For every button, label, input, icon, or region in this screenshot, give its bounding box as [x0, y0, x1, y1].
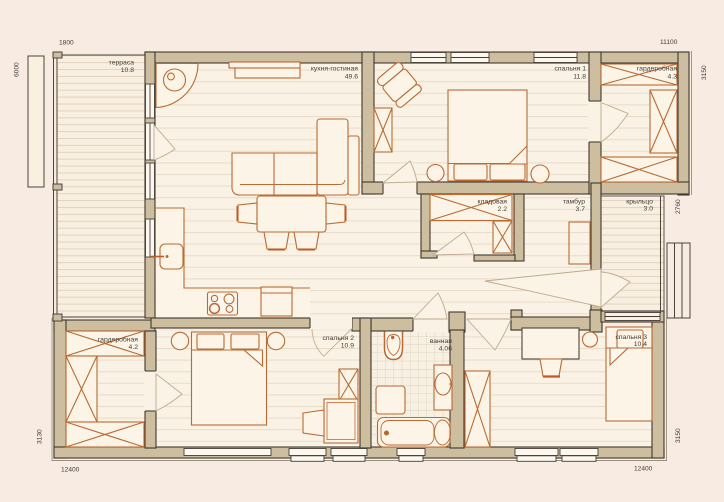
svg-text:3130: 3130: [37, 429, 44, 444]
svg-text:спальня 3: спальня 3: [616, 334, 648, 341]
svg-text:12400: 12400: [634, 466, 653, 473]
svg-text:кладовая: кладовая: [477, 199, 507, 206]
svg-text:спальня 2: спальня 2: [323, 335, 355, 342]
svg-text:терраса: терраса: [109, 60, 135, 67]
svg-text:2.2: 2.2: [498, 206, 508, 213]
svg-text:11100: 11100: [660, 39, 678, 46]
svg-text:спальня 1: спальня 1: [555, 66, 587, 73]
svg-text:10.8: 10.8: [121, 67, 134, 74]
svg-text:3.0: 3.0: [644, 206, 654, 213]
svg-text:4.2: 4.2: [129, 344, 139, 351]
svg-text:3150: 3150: [675, 428, 682, 443]
svg-text:4.3: 4.3: [668, 74, 678, 81]
svg-text:4.06: 4.06: [439, 346, 452, 353]
svg-text:6000: 6000: [14, 62, 21, 77]
svg-text:кухня-гостиная: кухня-гостиная: [311, 66, 358, 73]
svg-text:тамбур: тамбур: [563, 198, 585, 206]
svg-text:1800: 1800: [59, 40, 74, 47]
svg-text:10.4: 10.4: [634, 341, 647, 348]
svg-text:10.9: 10.9: [341, 343, 354, 350]
svg-text:3.7: 3.7: [576, 206, 586, 213]
svg-text:49.6: 49.6: [345, 74, 358, 81]
svg-text:11.8: 11.8: [573, 74, 586, 81]
svg-text:12400: 12400: [61, 467, 80, 474]
svg-text:2760: 2760: [675, 199, 682, 214]
svg-text:гардеробная: гардеробная: [637, 65, 677, 73]
svg-text:гардеробная: гардеробная: [98, 336, 138, 344]
svg-text:3150: 3150: [701, 65, 708, 80]
svg-text:ванная: ванная: [430, 338, 453, 345]
svg-text:крыльцо: крыльцо: [626, 199, 653, 206]
